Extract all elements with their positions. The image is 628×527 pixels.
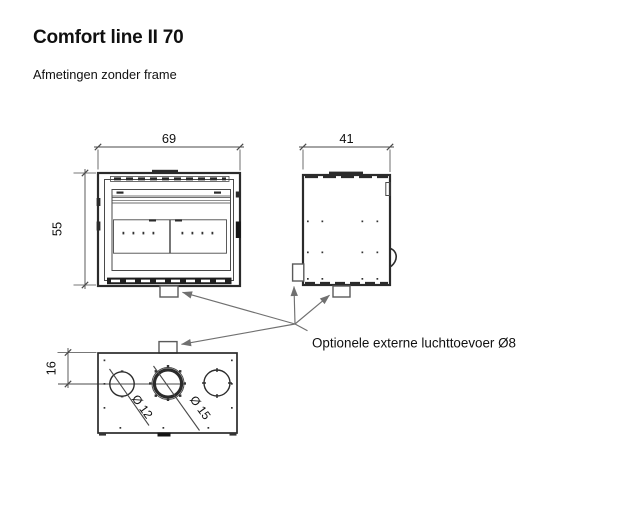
- hole-center: [149, 365, 186, 401]
- dim-front-height: 55: [50, 169, 97, 289]
- side-rivet-dots: [307, 221, 378, 280]
- panel-vent-dots: [123, 232, 214, 235]
- annotation-arrow-side-rear-stub: [294, 287, 295, 325]
- hinge-left-lower: [97, 222, 101, 231]
- front-width-label: 69: [162, 131, 176, 146]
- center-foot-mark: [158, 433, 171, 437]
- latch-right: [236, 192, 240, 198]
- side-door-handle: [391, 249, 397, 267]
- side-bottom-air-stub: [333, 286, 350, 297]
- bottom-offset-label: 16: [44, 361, 59, 375]
- annotation-arrow-bottom-view-stub: [182, 324, 296, 344]
- side-rear-air-stub: [293, 264, 304, 281]
- annotation-arrow-front-stub: [183, 292, 296, 324]
- side-depth-label: 41: [339, 131, 353, 146]
- side-view: 41: [293, 131, 397, 297]
- front-glass-door: [112, 190, 231, 271]
- door-panel-right: [170, 220, 226, 253]
- front-bottom-vent-strip: [107, 278, 232, 285]
- hinge-left-upper: [97, 198, 101, 206]
- hole-left-diameter-label: Ø 12: [129, 392, 156, 422]
- annotation-arrow-side-bottom-stub: [295, 295, 330, 324]
- front-top-vent-strip: [111, 176, 230, 181]
- front-air-inlet-stub: [160, 286, 178, 297]
- hole-right: [202, 368, 232, 398]
- annotation-leader-tail: [295, 324, 308, 331]
- dim-front-width: 69: [94, 131, 244, 170]
- door-handle: [236, 222, 241, 239]
- dim-side-depth: 41: [299, 131, 394, 172]
- foot-mark: [99, 433, 106, 436]
- front-inner-frame: [105, 180, 234, 281]
- front-height-label: 55: [50, 222, 65, 236]
- annotation-label: Optionele externe luchttoevoer Ø8: [312, 336, 516, 351]
- bottom-air-inlet-stub: [159, 342, 177, 353]
- bottom-view: 16: [44, 342, 238, 437]
- technical-drawing: 69 55: [0, 0, 628, 527]
- foot-mark: [230, 433, 237, 436]
- dim-bottom-offset: 16: [44, 348, 97, 388]
- door-outline: [112, 190, 231, 271]
- side-outer-body: [303, 175, 390, 285]
- front-view: 69 55: [50, 131, 245, 297]
- door-panel-left: [114, 220, 170, 253]
